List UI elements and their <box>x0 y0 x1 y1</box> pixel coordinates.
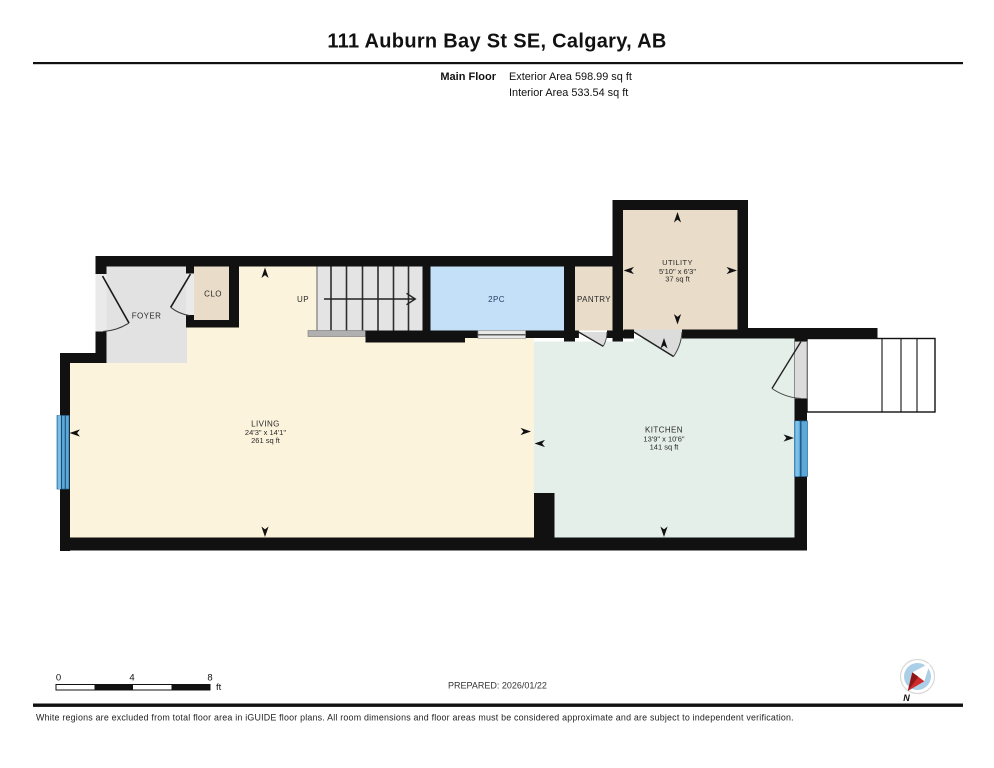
svg-text:KITCHEN: KITCHEN <box>645 426 683 435</box>
svg-text:8: 8 <box>207 673 212 684</box>
svg-text:0: 0 <box>56 673 61 684</box>
svg-text:261 sq ft: 261 sq ft <box>251 436 281 445</box>
svg-text:FOYER: FOYER <box>132 312 162 321</box>
svg-text:141 sq ft: 141 sq ft <box>650 443 680 452</box>
svg-text:UP: UP <box>297 295 309 304</box>
svg-text:4: 4 <box>129 673 134 684</box>
svg-text:Interior Area 533.54 sq ft: Interior Area 533.54 sq ft <box>509 87 628 99</box>
svg-text:Exterior Area 598.99 sq ft: Exterior Area 598.99 sq ft <box>509 71 632 83</box>
svg-text:Main Floor: Main Floor <box>440 71 496 83</box>
svg-text:CLO: CLO <box>204 290 222 299</box>
svg-text:2PC: 2PC <box>488 295 505 304</box>
svg-text:37 sq ft: 37 sq ft <box>665 275 691 284</box>
svg-text:N: N <box>903 693 910 703</box>
svg-text:ft: ft <box>216 682 222 693</box>
svg-text:PANTRY: PANTRY <box>577 295 611 304</box>
svg-text:111 Auburn Bay St SE, Calgary,: 111 Auburn Bay St SE, Calgary, AB <box>327 31 666 53</box>
svg-text:PREPARED: 2026/01/22: PREPARED: 2026/01/22 <box>448 681 547 691</box>
svg-text:White regions are excluded fro: White regions are excluded from total fl… <box>36 713 794 723</box>
svg-text:UTILITY: UTILITY <box>662 258 693 267</box>
